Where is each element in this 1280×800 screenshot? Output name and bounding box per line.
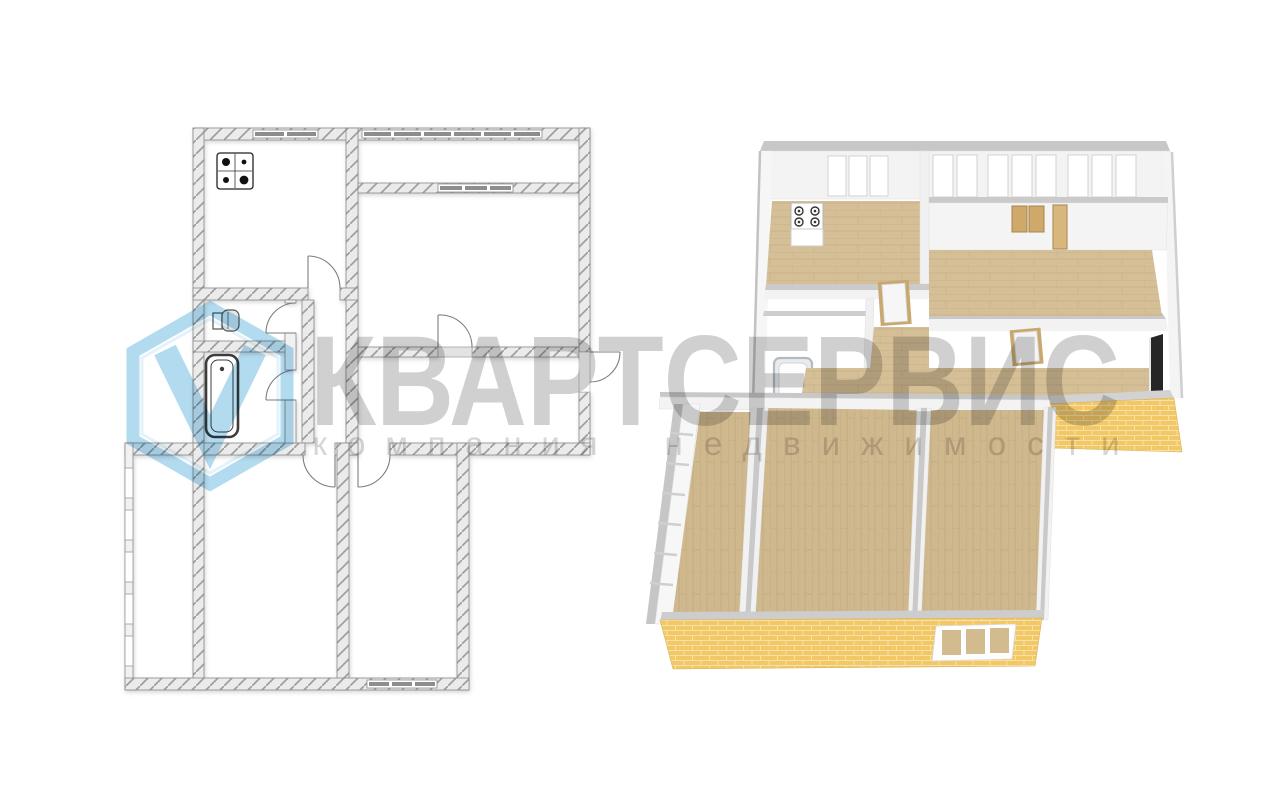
front-window bbox=[932, 624, 1016, 661]
stove-icon bbox=[217, 153, 253, 189]
brick-wall-front bbox=[660, 610, 1044, 669]
real-estate-floorplan-image: КВАРТСЕРВИС компания недвижимости bbox=[0, 0, 1280, 800]
floorplan-scene: КВАРТСЕРВИС компания недвижимости bbox=[0, 0, 1280, 800]
living-room-floor bbox=[929, 250, 1162, 316]
stove-3d-icon bbox=[791, 203, 823, 246]
kitchen-floor bbox=[766, 201, 924, 287]
